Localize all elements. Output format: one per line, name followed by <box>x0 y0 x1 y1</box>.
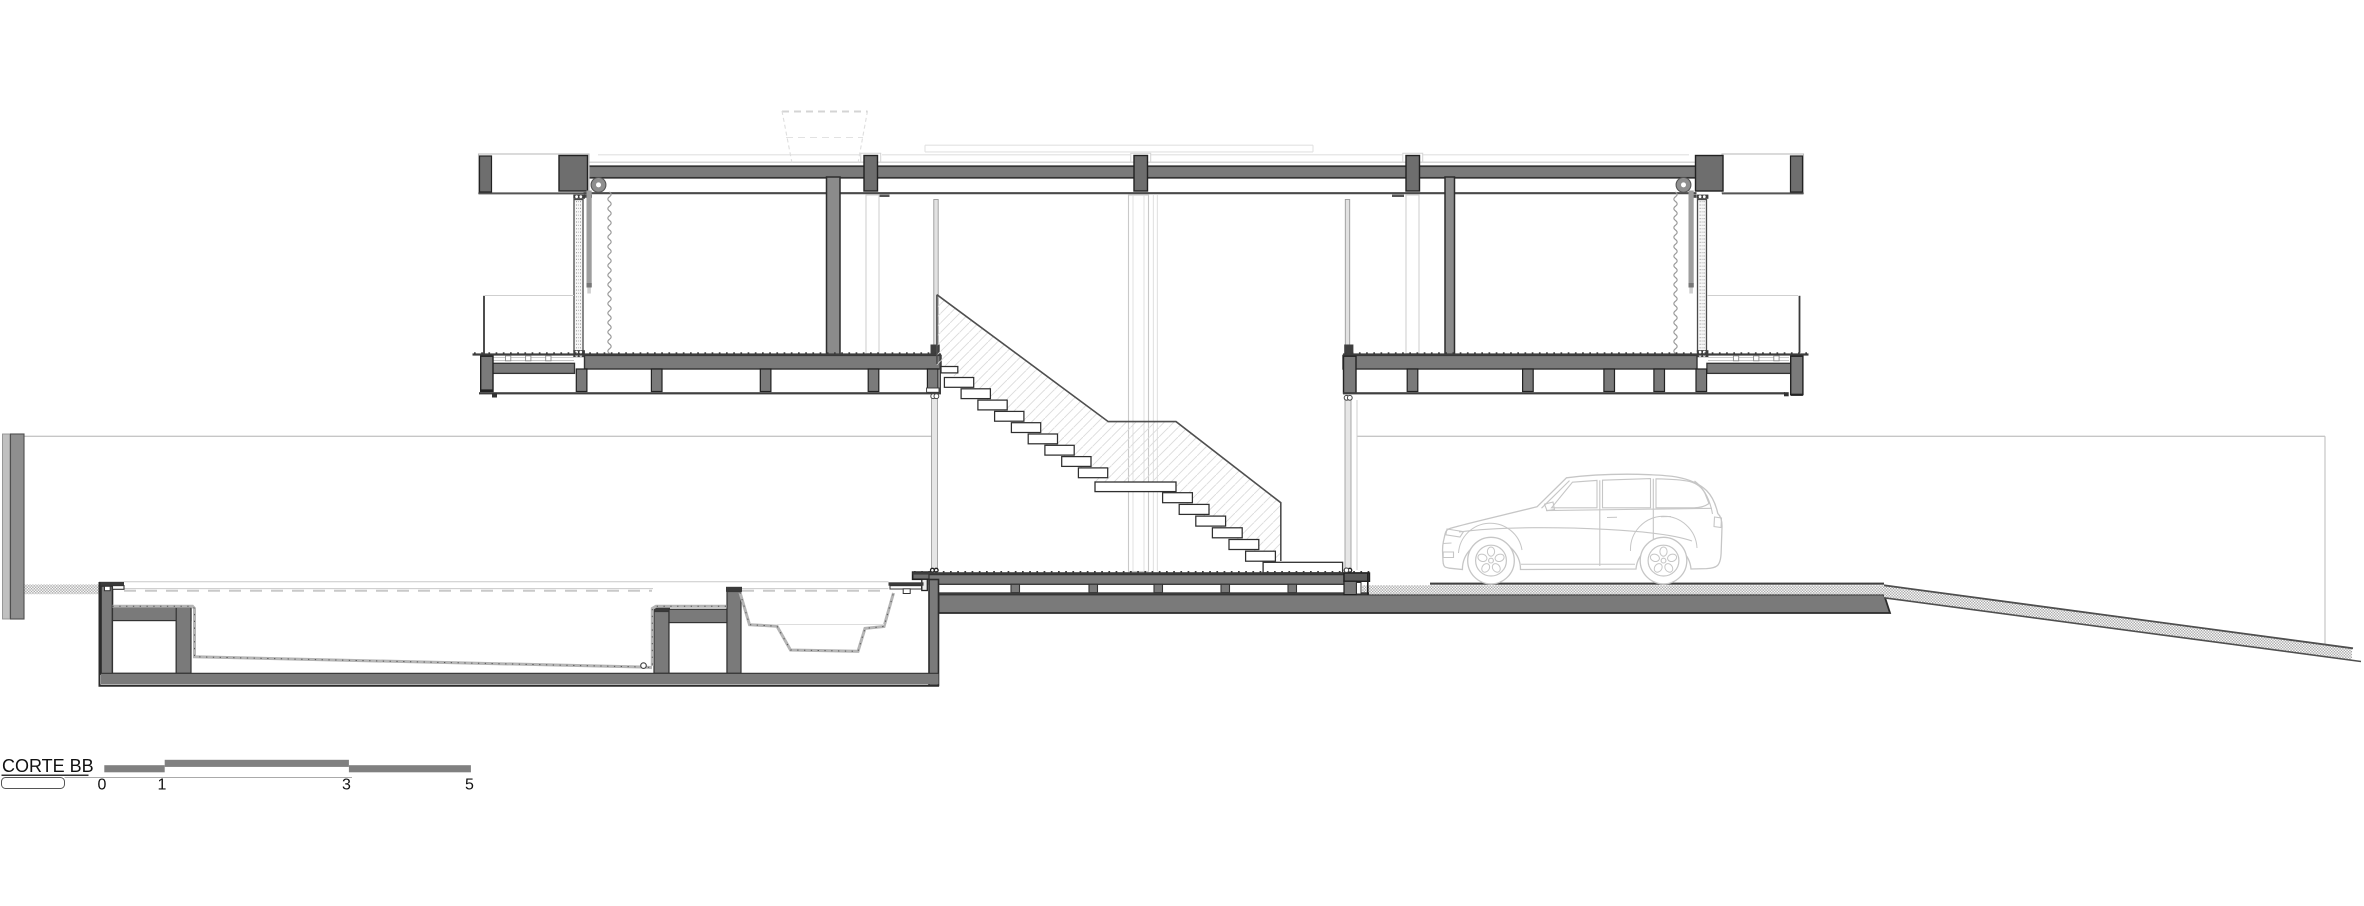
svg-text:CORTE BB: CORTE BB <box>2 756 94 776</box>
svg-text:5: 5 <box>465 777 474 794</box>
svg-text:3: 3 <box>342 777 351 794</box>
svg-text:0: 0 <box>98 777 107 794</box>
svg-text:1: 1 <box>158 777 167 794</box>
